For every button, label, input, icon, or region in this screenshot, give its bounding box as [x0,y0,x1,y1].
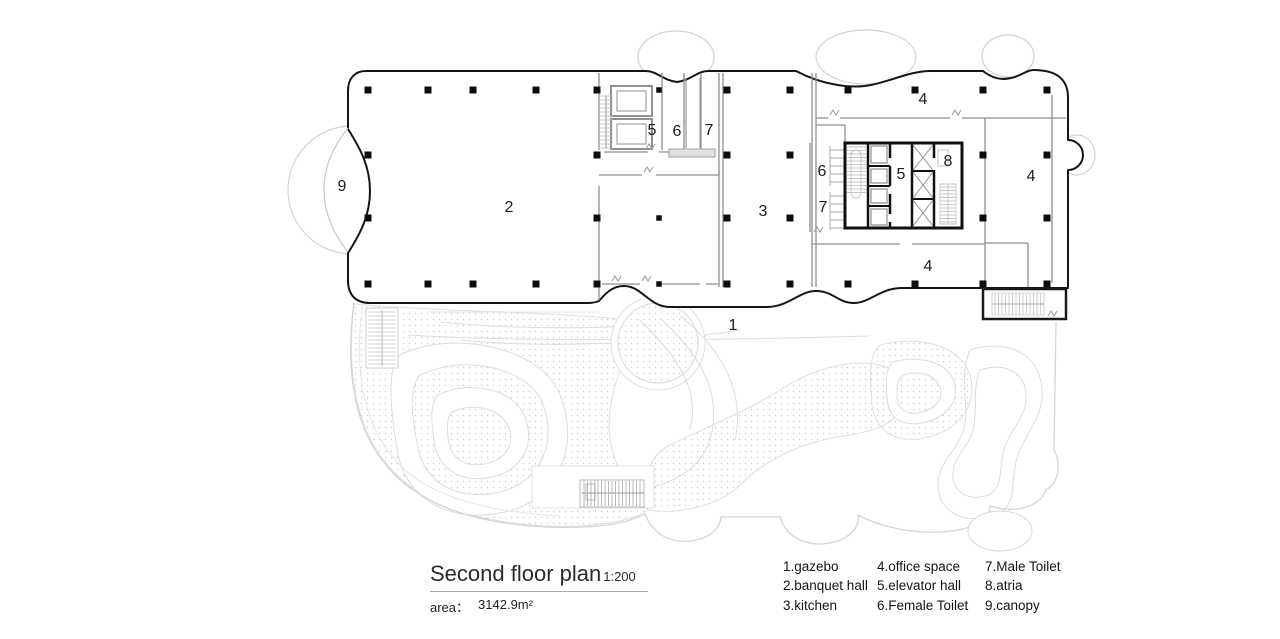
room-label-4: 4 [924,259,933,275]
room-label-6: 6 [818,164,827,180]
legend-column: 1.gazebo2.banquet hall3.kitchen [783,557,877,615]
site-bump [968,511,1032,551]
floor-plan-drawing [0,0,1280,639]
room-label-5: 5 [648,123,657,139]
legend-item-6: 6.Female Toilet [877,596,985,615]
paved-area-middle [645,363,905,511]
legend-item-9: 9.canopy [985,596,1061,615]
tree-circle-dotted [618,303,698,383]
drawing-title: Second floor plan [430,561,601,587]
room-label-3: 3 [759,204,768,220]
area-label: area： [430,597,469,616]
room-label-1: 1 [729,318,738,334]
legend-item-8: 8.atria [985,576,1061,595]
title-underline [430,591,648,592]
legend-column: 4.office space5.elevator hall6.Female To… [877,557,985,615]
room-label-6: 6 [673,124,682,140]
area-value: 3142.9m² [478,597,533,616]
legend-item-5: 5.elevator hall [877,576,985,595]
room-label-4: 4 [1027,169,1036,185]
garden-stairs-icon [366,308,398,368]
garden-stairs-icon [580,480,644,507]
title-block: Second floor plan 1:200 area： 3142.9m² [430,561,648,616]
landscape-layer [351,296,1058,551]
room-label-4: 4 [919,92,928,108]
area-line: area： 3142.9m² [430,597,648,616]
room-label-8: 8 [944,154,953,170]
room-label-7: 7 [819,200,828,216]
drawing-scale: 1:200 [603,569,636,584]
room-label-5: 5 [897,167,906,183]
legend-item-1: 1.gazebo [783,557,877,576]
legend-item-2: 2.banquet hall [783,576,877,595]
floor-plan-page: 92567346758441 Second floor plan 1:200 a… [0,0,1280,639]
room-label-7: 7 [705,123,714,139]
legend-column: 7.Male Toilet8.atria9.canopy [985,557,1061,615]
building-outline [348,70,1083,307]
legend-item-4: 4.office space [877,557,985,576]
legend-item-3: 3.kitchen [783,596,877,615]
legend-item-7: 7.Male Toilet [985,557,1061,576]
room-label-2: 2 [505,200,514,216]
room-label-9: 9 [338,179,347,195]
building-layer [288,30,1095,319]
legend: 1.gazebo2.banquet hall3.kitchen4.office … [783,557,1061,615]
